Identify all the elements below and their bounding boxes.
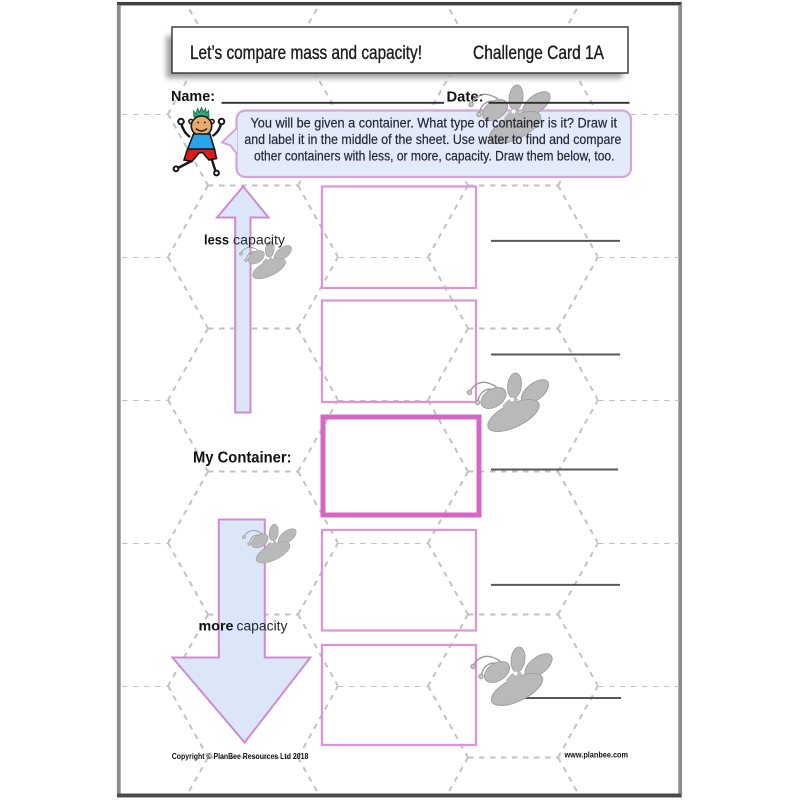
- svg-text:Copyright © PlanBee Resources: Copyright © PlanBee Resources Ltd 2018: [172, 752, 309, 761]
- svg-text:and label it in the middle of: and label it in the middle of the sheet.…: [244, 131, 621, 147]
- svg-text:Challenge Card 1A: Challenge Card 1A: [473, 43, 604, 64]
- svg-text:less: less: [204, 233, 229, 248]
- svg-text:Let’s compare mass and capacit: Let’s compare mass and capacity!: [190, 43, 422, 64]
- svg-text:Name:: Name:: [171, 88, 215, 105]
- svg-text:capacity: capacity: [233, 233, 285, 248]
- svg-text:My Container:: My Container:: [193, 450, 292, 467]
- svg-text:capacity: capacity: [237, 619, 288, 634]
- svg-text:www.planbee.com: www.planbee.com: [564, 751, 628, 760]
- svg-text:other containers with less, or: other containers with less, or more, cap…: [254, 148, 615, 164]
- svg-text:You will be given a container.: You will be given a container. What type…: [251, 115, 618, 131]
- svg-text:more: more: [199, 619, 235, 634]
